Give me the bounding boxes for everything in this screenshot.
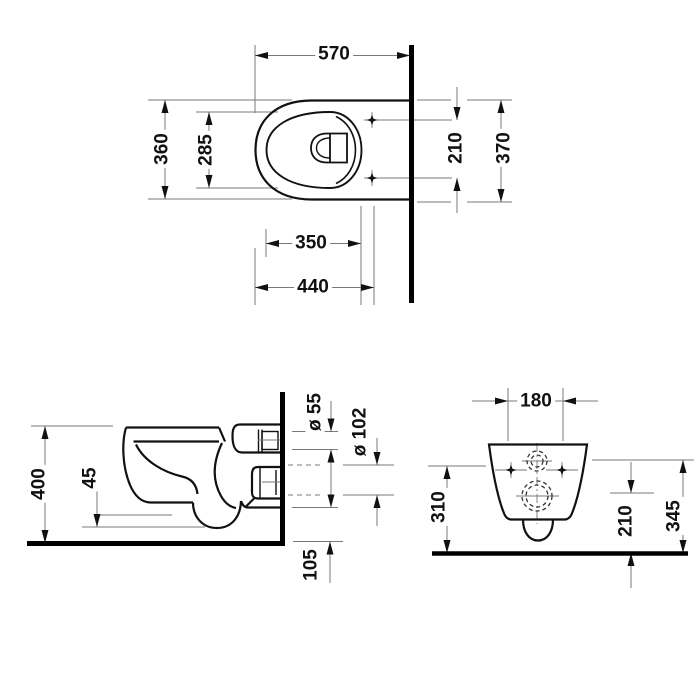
dim-label-outlet-floor: 105	[302, 546, 321, 584]
dim-label-rim-height: 400	[30, 465, 49, 503]
dim-label-width-incl: 370	[495, 129, 514, 167]
dim-label-fixing-spacing-front: 180	[517, 392, 555, 411]
dim-label-inlet-height: 310	[430, 488, 449, 526]
dim-label-seat-width: 285	[197, 131, 216, 169]
connector-details	[258, 430, 281, 499]
dim-label-overall-length: 570	[315, 45, 353, 64]
dim-label-front-to-fixing: 440	[294, 278, 332, 297]
technical-drawing: 570 360 285 210 370 350 440 400 45 ø 55 …	[0, 0, 700, 700]
dim-label-outlet-height: 210	[617, 502, 636, 540]
dim-label-outlet-diameter: ø 102	[351, 405, 370, 460]
dim-label-inlet-diameter: ø 55	[306, 390, 325, 434]
top-view	[148, 45, 512, 305]
dim-label-trap-clearance: 45	[81, 464, 100, 491]
fixing-point-markers	[367, 115, 378, 184]
front-view	[428, 388, 694, 588]
drawing-linework	[0, 0, 700, 700]
flush-distributor	[311, 134, 347, 163]
dim-label-fixing-spacing-top: 210	[447, 129, 466, 167]
dim-label-connection-height: 345	[665, 497, 684, 535]
toilet-plan-outline	[256, 101, 411, 200]
fixing-hole-markers	[506, 465, 568, 476]
dim-label-seat-length: 350	[292, 234, 330, 253]
toilet-rear-outline	[489, 445, 587, 541]
dim-label-overall-width: 360	[153, 130, 172, 168]
